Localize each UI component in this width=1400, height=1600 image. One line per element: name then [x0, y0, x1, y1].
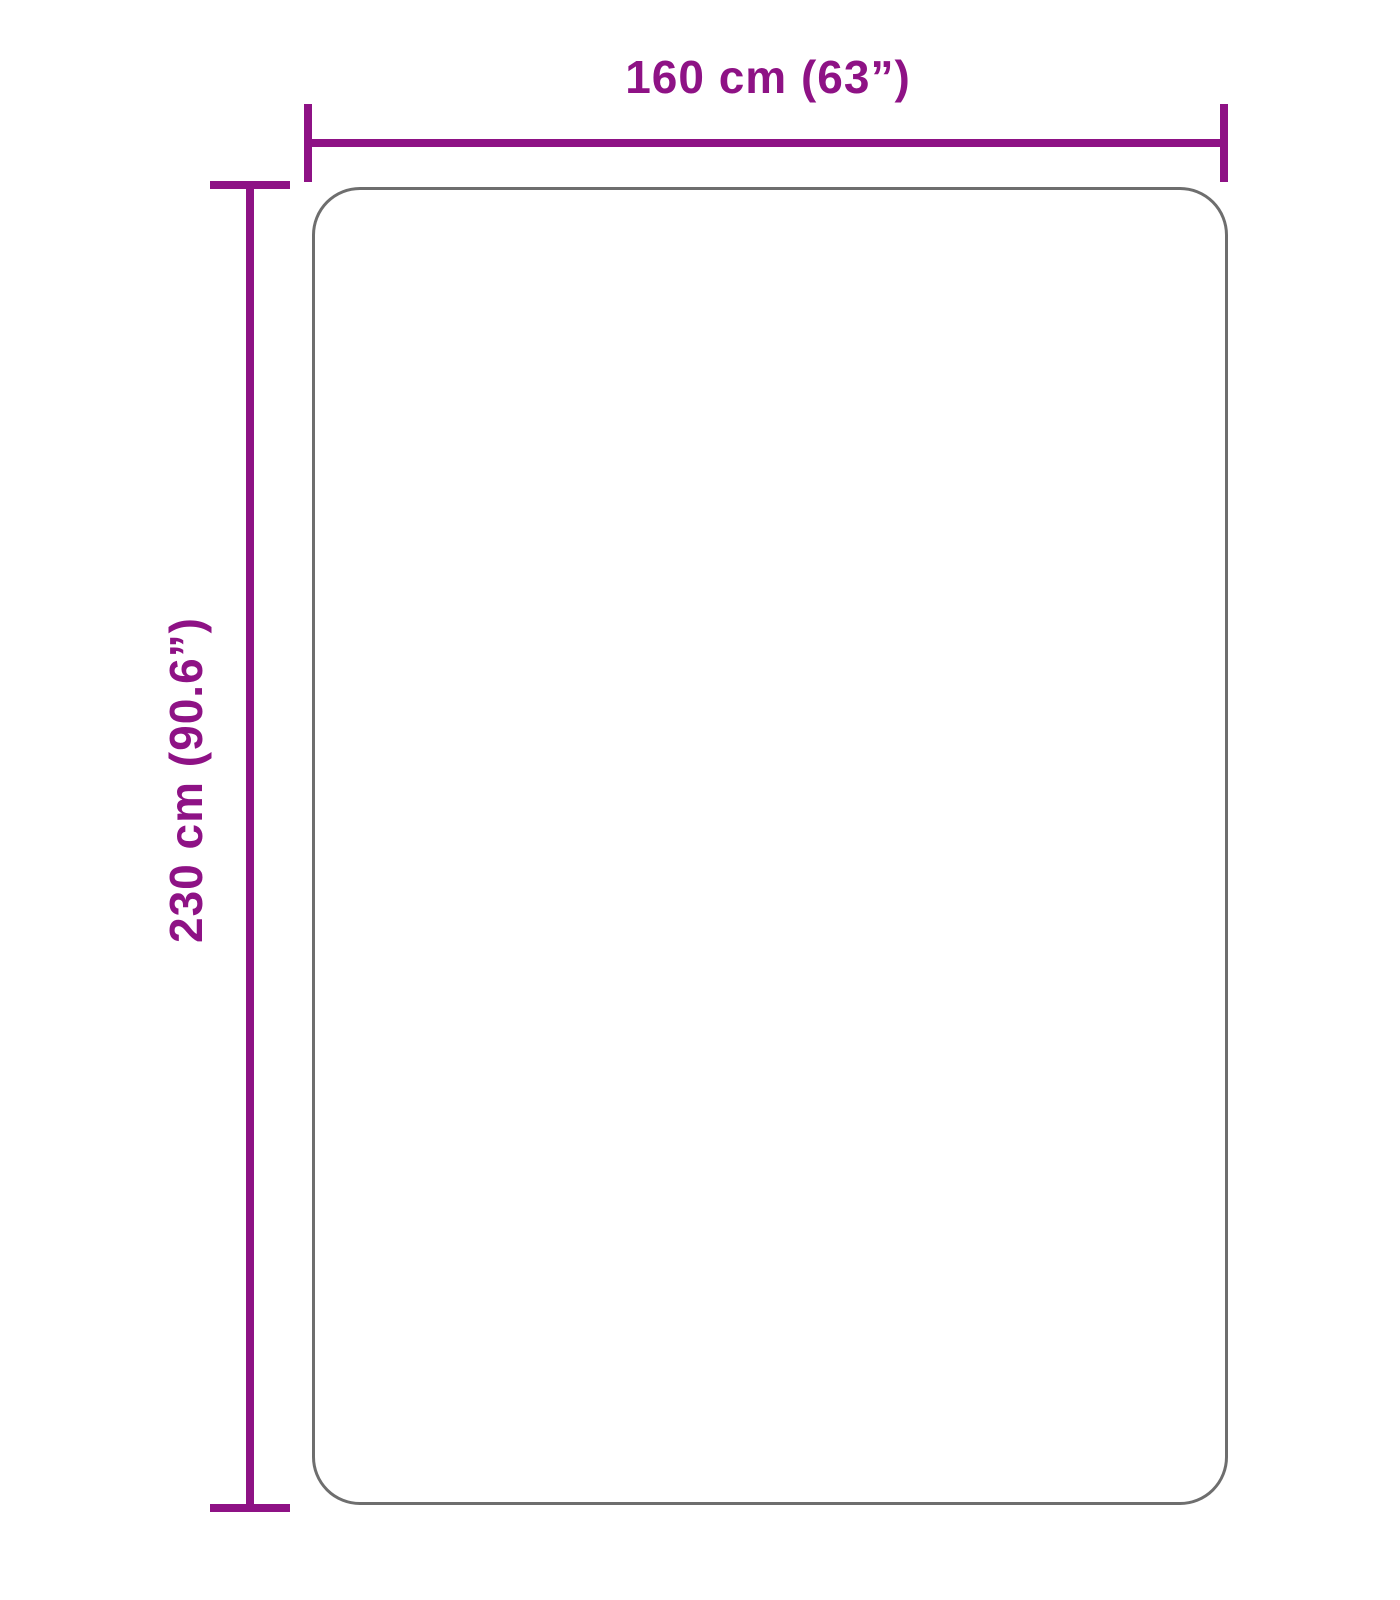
height-label: 230 cm (90.6”): [159, 617, 213, 943]
height-dimension-tick-top: [210, 181, 290, 189]
dimension-diagram: 160 cm (63”) 230 cm (90.6”): [0, 0, 1400, 1600]
width-dimension-line: [308, 139, 1228, 147]
product-outline: [312, 187, 1228, 1505]
width-dimension-tick-right: [1220, 104, 1228, 182]
height-dimension-tick-bottom: [210, 1504, 290, 1512]
width-label: 160 cm (63”): [625, 50, 911, 104]
height-dimension-line: [246, 181, 254, 1512]
width-dimension-tick-left: [304, 104, 312, 182]
